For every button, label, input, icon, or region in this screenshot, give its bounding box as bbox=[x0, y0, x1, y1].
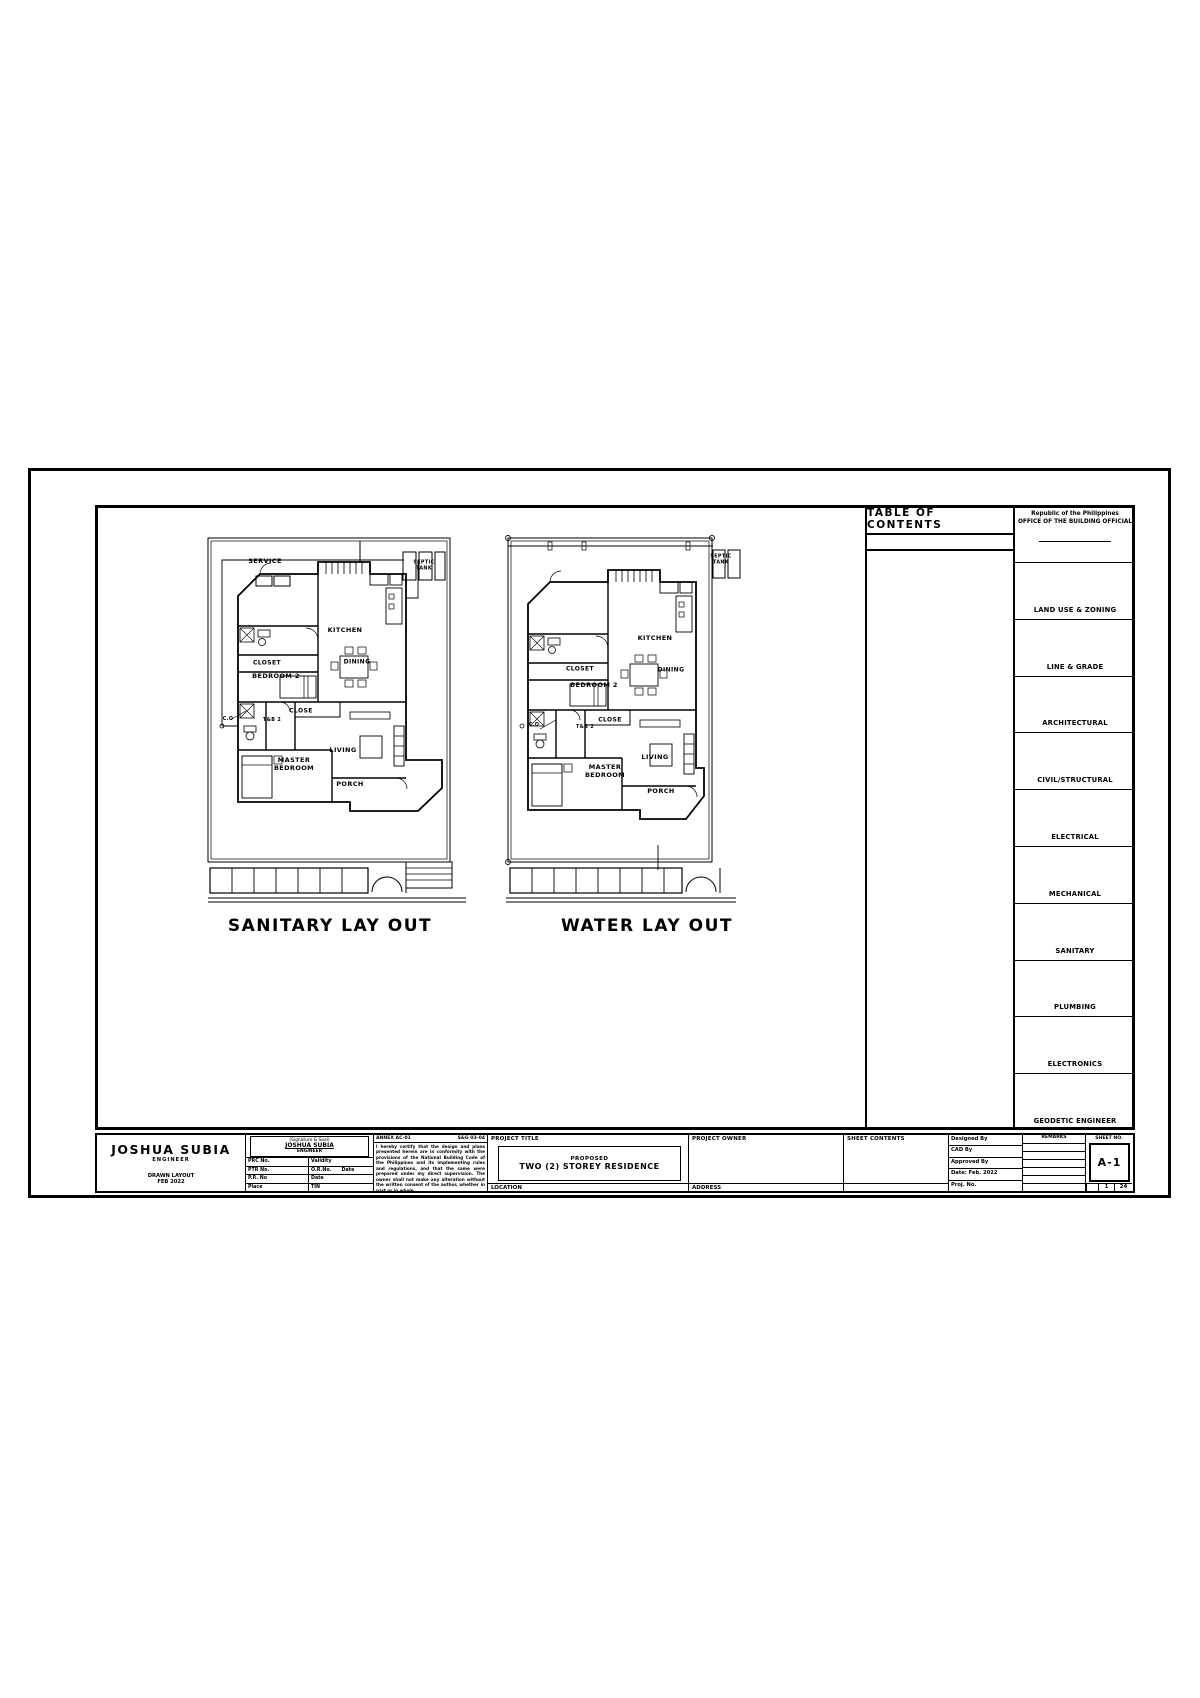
agency-header: Republic of the Philippines OFFICE OF TH… bbox=[1015, 505, 1135, 563]
room-label: KITCHEN bbox=[638, 635, 673, 643]
sheet-contents-cell: SHEET CONTENTS bbox=[843, 1135, 948, 1191]
field-label: P.R. No bbox=[246, 1175, 308, 1183]
field-label: Validity bbox=[308, 1158, 373, 1166]
room-label: PORCH bbox=[647, 788, 675, 796]
room-label: SERVICE bbox=[248, 558, 282, 566]
sheet-number-header: SHEET NO. bbox=[1086, 1136, 1132, 1141]
room-label: SEPTIC TANK bbox=[413, 560, 434, 572]
drawing-sheet-page: SERVICESEPTIC TANKKITCHENDININGCLOSETBED… bbox=[0, 0, 1200, 1698]
signature-field-row: PlaceTIN bbox=[246, 1183, 373, 1192]
sanitary-plan-drawing bbox=[200, 530, 475, 910]
sheet-number-footer: 1 24 bbox=[1086, 1183, 1132, 1192]
address-divider bbox=[689, 1183, 843, 1184]
project-owner-cell: PROJECT OWNER ADDRESS bbox=[688, 1135, 843, 1191]
contents-item: ELECTRONICS bbox=[1015, 1017, 1135, 1074]
contents-item: LINE & GRADE bbox=[1015, 620, 1135, 677]
room-label: BEDROOM 2 bbox=[570, 682, 618, 690]
revision-row bbox=[1023, 1160, 1085, 1168]
notes-header: ANNEX AC-01 S&G 03-04 bbox=[374, 1135, 487, 1143]
project-title-cell: PROJECT TITLE PROPOSED TWO (2) STOREY RE… bbox=[487, 1135, 688, 1191]
toc-title: TABLE OF CONTENTS bbox=[867, 505, 1013, 535]
field-label: TIN bbox=[308, 1184, 373, 1192]
room-label: MASTER BEDROOM bbox=[274, 757, 314, 773]
room-label: CLOSE bbox=[598, 716, 622, 723]
room-label: T&B 2 bbox=[576, 725, 594, 731]
room-label: CLOSET bbox=[253, 659, 281, 666]
room-label: KITCHEN bbox=[328, 627, 363, 635]
contents-rows: LAND USE & ZONINGLINE & GRADEARCHITECTUR… bbox=[1015, 563, 1135, 1130]
engineer-name: JOSHUA SUBIA bbox=[97, 1142, 245, 1157]
sheet-total-number: 24 bbox=[1114, 1184, 1132, 1192]
room-label: T&B 2 bbox=[263, 718, 281, 724]
field-label: O.R.No. Date bbox=[308, 1167, 373, 1175]
approval-row: Date: Feb. 2022 bbox=[949, 1169, 1022, 1180]
room-label: LIVING bbox=[641, 754, 668, 762]
table-of-contents-box: TABLE OF CONTENTS bbox=[865, 505, 1013, 1130]
approval-row: Proj. No. bbox=[949, 1181, 1022, 1191]
revision-row bbox=[1023, 1168, 1085, 1176]
revisions-header: REMARKS bbox=[1023, 1135, 1085, 1144]
contents-column: Republic of the Philippines OFFICE OF TH… bbox=[1013, 505, 1135, 1130]
sanitary-plan-title: SANITARY LAY OUT bbox=[205, 916, 455, 936]
room-label: BEDROOM 2 bbox=[252, 673, 300, 681]
contents-item: CIVIL/STRUCTURAL bbox=[1015, 733, 1135, 790]
approval-row: CAD By bbox=[949, 1146, 1022, 1157]
room-label: LIVING bbox=[329, 747, 356, 755]
room-label: SEPTIC TANK bbox=[710, 554, 731, 566]
field-label: PRC No. bbox=[246, 1158, 308, 1166]
approval-row: Designed By bbox=[949, 1135, 1022, 1146]
sheet-contents-header: SHEET CONTENTS bbox=[847, 1136, 905, 1142]
room-label: C.O bbox=[529, 723, 540, 729]
signature-cell: (Signature & Seal) JOSHUA SUBIA ENGINEER… bbox=[245, 1135, 373, 1191]
room-label: DINING bbox=[658, 666, 685, 673]
signature-fields: PRC No.ValidityPTR No.O.R.No. DateP.R. N… bbox=[246, 1157, 373, 1191]
field-label: PTR No. bbox=[246, 1167, 308, 1175]
signature-box: (Signature & Seal) JOSHUA SUBIA ENGINEER bbox=[250, 1136, 369, 1157]
notes-header-left: ANNEX AC-01 bbox=[376, 1136, 411, 1141]
revision-row bbox=[1023, 1152, 1085, 1160]
sheet-contents-divider bbox=[844, 1183, 948, 1184]
engineer-role: ENGINEER bbox=[97, 1157, 245, 1163]
contents-item: SANITARY bbox=[1015, 904, 1135, 961]
revisions-cell: REMARKS bbox=[1022, 1135, 1085, 1191]
room-label: CLOSET bbox=[566, 665, 594, 672]
agency-line1: Republic of the Philippines bbox=[1015, 511, 1135, 519]
contents-item: ELECTRICAL bbox=[1015, 790, 1135, 847]
room-label: C.O bbox=[223, 717, 234, 723]
field-label: Place bbox=[246, 1184, 308, 1192]
approvals-cell: Designed ByCAD ByApproved ByDate: Feb. 2… bbox=[948, 1135, 1022, 1191]
location-label: LOCATION bbox=[491, 1185, 522, 1191]
signature-role: ENGINEER bbox=[251, 1150, 368, 1154]
approval-row: Approved By bbox=[949, 1158, 1022, 1169]
water-plan: SEPTIC TANKKITCHENDININGCLOSETBEDROOM 2C… bbox=[470, 530, 745, 910]
project-title-box: PROPOSED TWO (2) STOREY RESIDENCE bbox=[498, 1146, 681, 1181]
sanitary-plan: SERVICESEPTIC TANKKITCHENDININGCLOSETBED… bbox=[200, 530, 475, 910]
contents-item: GEODETIC ENGINEER bbox=[1015, 1074, 1135, 1130]
contents-item: LAND USE & ZONING bbox=[1015, 563, 1135, 620]
contents-item: MECHANICAL bbox=[1015, 847, 1135, 904]
revision-row bbox=[1023, 1144, 1085, 1152]
project-title: TWO (2) STOREY RESIDENCE bbox=[499, 1162, 680, 1171]
sheet-number-value: A-1 bbox=[1089, 1143, 1130, 1182]
water-plan-title: WATER LAY OUT bbox=[522, 916, 772, 936]
contents-item: PLUMBING bbox=[1015, 961, 1135, 1018]
room-label: DINING bbox=[344, 658, 371, 665]
location-divider bbox=[488, 1183, 688, 1184]
room-label: CLOSE bbox=[289, 707, 313, 714]
title-block: JOSHUA SUBIA ENGINEER DRAWN LAYOUT FEB 2… bbox=[95, 1133, 1135, 1193]
project-title-header: PROJECT TITLE bbox=[491, 1136, 539, 1142]
engineer-note-2: FEB 2022 bbox=[97, 1179, 245, 1185]
project-owner-header: PROJECT OWNER bbox=[692, 1136, 746, 1142]
revision-row bbox=[1023, 1184, 1085, 1191]
notes-cell: ANNEX AC-01 S&G 03-04 I hereby certify t… bbox=[373, 1135, 487, 1191]
notes-body: I hereby certify that the design and pla… bbox=[376, 1144, 485, 1193]
notes-header-right: S&G 03-04 bbox=[458, 1136, 485, 1141]
agency-line2: OFFICE OF THE BUILDING OFFICIAL bbox=[1015, 519, 1135, 527]
engineer-cell: JOSHUA SUBIA ENGINEER DRAWN LAYOUT FEB 2… bbox=[97, 1135, 245, 1191]
signature-field-row: P.R. NoDate bbox=[246, 1174, 373, 1183]
contents-item: ARCHITECTURAL bbox=[1015, 677, 1135, 734]
sheet-page-number: 1 bbox=[1098, 1184, 1114, 1192]
sheet-footer-blank bbox=[1086, 1184, 1098, 1192]
room-label: MASTER BEDROOM bbox=[585, 764, 625, 780]
revision-row bbox=[1023, 1176, 1085, 1184]
signature-field-row: PRC No.Validity bbox=[246, 1157, 373, 1166]
agency-signature-line bbox=[1039, 541, 1111, 542]
room-label: PORCH bbox=[336, 781, 364, 789]
sheet-number-cell: SHEET NO. A-1 1 24 bbox=[1085, 1135, 1132, 1191]
signature-field-row: PTR No.O.R.No. Date bbox=[246, 1166, 373, 1175]
field-label: Date bbox=[308, 1175, 373, 1183]
toc-empty-row bbox=[867, 535, 1013, 551]
address-label: ADDRESS bbox=[692, 1185, 721, 1191]
